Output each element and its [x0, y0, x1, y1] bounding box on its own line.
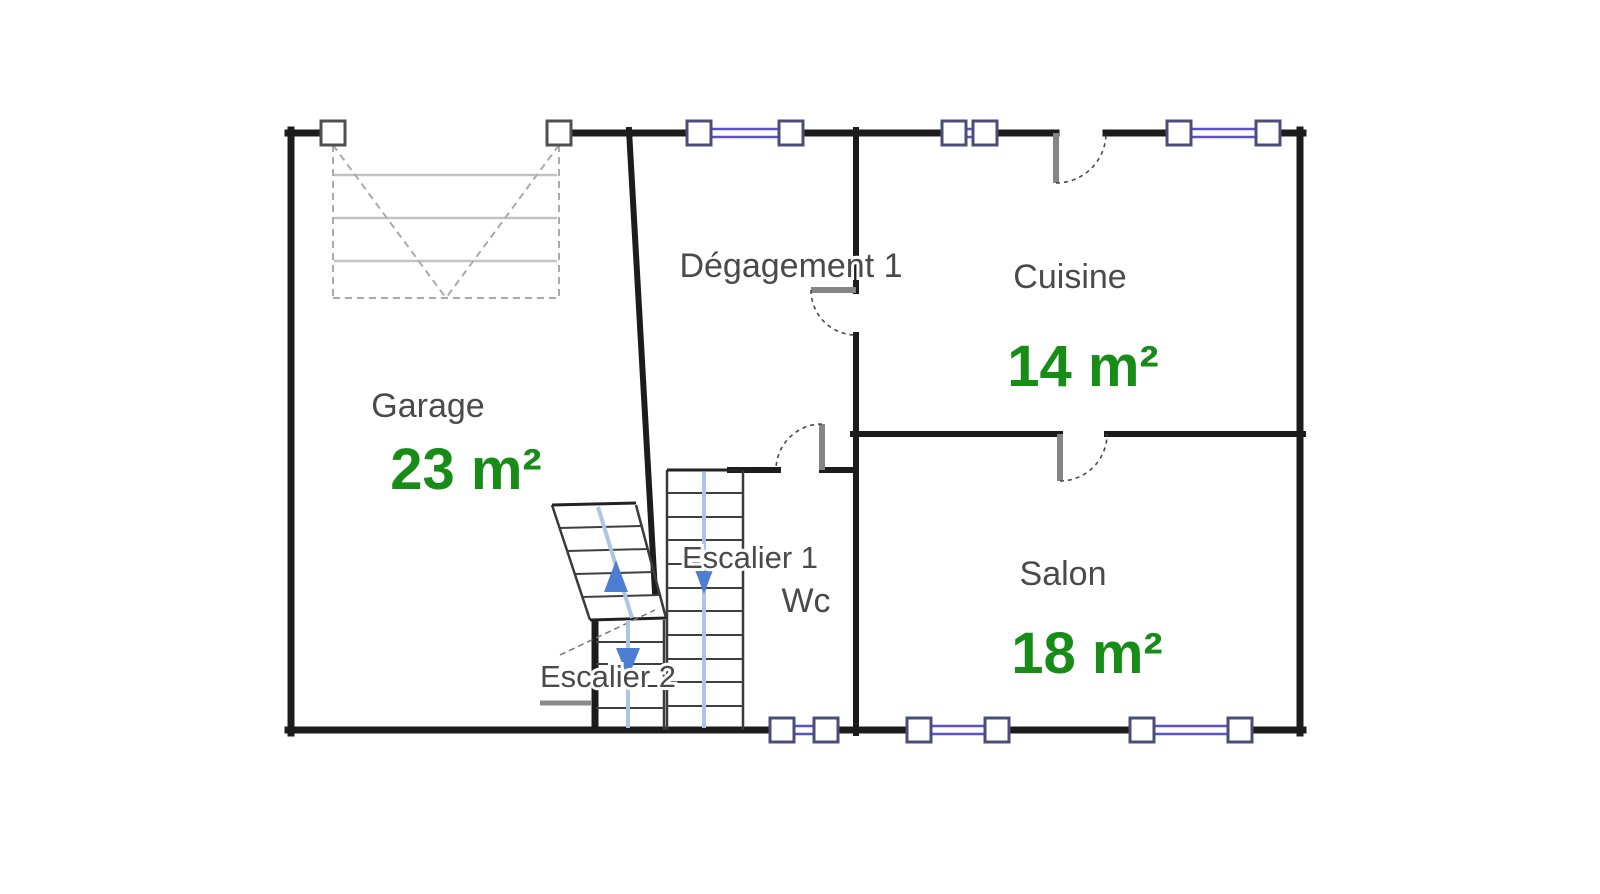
window-degagement: [687, 121, 803, 145]
stair-escalier-2: [540, 503, 666, 730]
floor-plan: Garage 23 m² Dégagement 1 Cuisine 14 m² …: [0, 0, 1600, 894]
window-cuisine-small: [942, 121, 997, 145]
escalier1-label: Escalier 1: [682, 540, 818, 575]
window-salon-right: [1130, 718, 1252, 742]
garage-door-post: [321, 121, 345, 145]
doors: [776, 133, 1107, 481]
garage-area: 23 m²: [390, 437, 542, 502]
garage-door: [321, 121, 571, 298]
stair2-guide-line: [598, 507, 632, 618]
stair2-break-line: [560, 610, 655, 655]
degagement-label: Dégagement 1: [679, 247, 902, 285]
door-degagement-cuisine: [811, 290, 856, 335]
wc-label: Wc: [781, 582, 830, 620]
door-wc: [776, 424, 822, 470]
interior-walls: [629, 130, 1303, 733]
stair2-up-arrow-icon: [604, 560, 628, 592]
cuisine-area: 14 m²: [1007, 334, 1159, 399]
garage-door-post: [547, 121, 571, 145]
cuisine-label: Cuisine: [1013, 258, 1126, 296]
escalier2-label: Escalier 2: [540, 659, 676, 694]
garage-label: Garage: [371, 387, 484, 425]
stair-escalier-1: [667, 470, 743, 730]
salon-area: 18 m²: [1011, 621, 1163, 686]
window-salon-left: [907, 718, 1009, 742]
door-salon: [1060, 434, 1107, 481]
door-cuisine-entry: [1056, 133, 1106, 183]
salon-label: Salon: [1020, 555, 1107, 593]
garage-wall: [629, 130, 655, 592]
window-cuisine: [1167, 121, 1280, 145]
window-wc: [770, 718, 838, 742]
